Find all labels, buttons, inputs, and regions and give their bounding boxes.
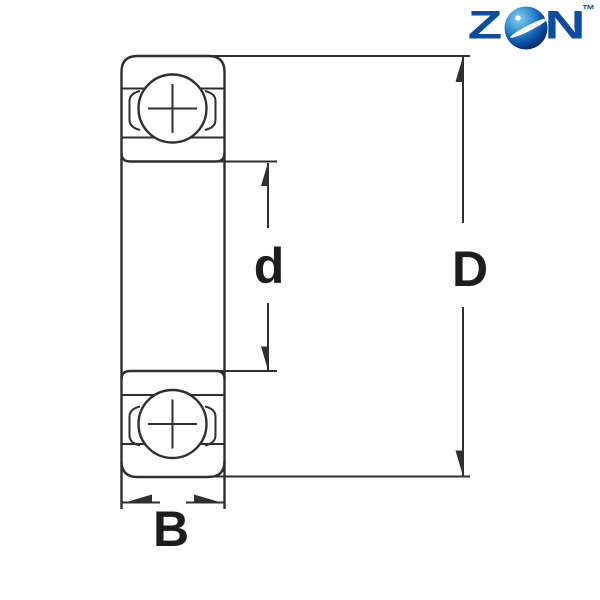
arrow-down-icon: [261, 347, 268, 371]
inner-ring-top-edge: [122, 371, 225, 379]
bearing-dimension-diagram: Z N ™: [0, 0, 600, 600]
outer-ring-bottom-edge: [122, 461, 225, 477]
outer-diameter-label: D: [452, 244, 488, 294]
arrow-up-icon: [261, 163, 268, 187]
arrow-up-icon: [456, 57, 464, 83]
extension-lines: [209, 56, 470, 477]
inner-ring-bottom-edge: [122, 153, 225, 162]
outer-ring-top-edge: [122, 56, 225, 72]
width-label: B: [153, 504, 189, 554]
bore-diameter-label: d: [254, 241, 285, 291]
top-bearing-section: [122, 56, 225, 162]
bearing-cross-section-drawing: [0, 0, 600, 600]
arrow-down-icon: [456, 451, 464, 477]
bottom-bearing-section: [122, 371, 225, 477]
